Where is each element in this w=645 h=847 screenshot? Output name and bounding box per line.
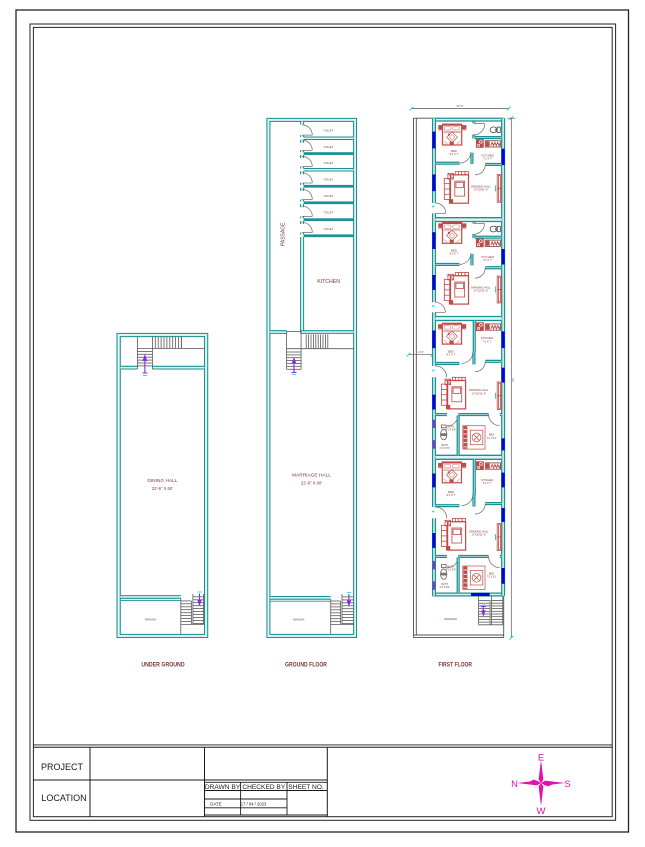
svg-text:9′1 X 7′: 9′1 X 7′: [447, 493, 457, 497]
svg-text:TOILET: TOILET: [324, 145, 334, 149]
svg-text:VERANDAH: VERANDAH: [293, 617, 305, 621]
svg-text:17′X10′11′-6″: 17′X10′11′-6″: [471, 533, 486, 537]
svg-text:17 / 04 / 2023: 17 / 04 / 2023: [241, 801, 267, 806]
svg-text:TOILET: TOILET: [324, 210, 334, 214]
svg-text:PASSAGE: PASSAGE: [281, 222, 287, 246]
svg-text:S: S: [564, 779, 570, 790]
svg-text:VERANDAH: VERANDAH: [145, 617, 157, 621]
svg-text:FIRST FLOOR: FIRST FLOOR: [439, 662, 473, 669]
svg-text:22′-6″ X 60′: 22′-6″ X 60′: [152, 486, 173, 491]
svg-text:VERANDAH: VERANDAH: [444, 617, 457, 621]
svg-text:KITCHEN: KITCHEN: [317, 279, 340, 285]
svg-text:7′1 X 7′: 7′1 X 7′: [483, 258, 493, 262]
svg-text:GROUND FLOOR: GROUND FLOOR: [285, 662, 327, 669]
svg-text:LOCATION: LOCATION: [41, 793, 86, 803]
svg-text:7′1 X 10′: 7′1 X 10′: [487, 576, 497, 579]
svg-text:TOILET: TOILET: [324, 161, 334, 165]
svg-text:PROJECT: PROJECT: [41, 762, 84, 772]
svg-text:7′1 X 7′: 7′1 X 7′: [483, 481, 493, 485]
svg-text:TOILET: TOILET: [324, 177, 334, 181]
svg-text:DRAWN BY: DRAWN BY: [205, 784, 241, 791]
svg-text:TOILET: TOILET: [324, 128, 334, 132]
svg-text:22′-6″ X 60′: 22′-6″ X 60′: [301, 481, 322, 486]
svg-text:9′1 X 7′: 9′1 X 7′: [447, 353, 457, 357]
svg-text:7′1 X 7′: 7′1 X 7′: [483, 339, 493, 343]
svg-text:7′1 X 10′: 7′1 X 10′: [487, 437, 497, 440]
svg-text:7′1 X 7′: 7′1 X 7′: [483, 157, 493, 161]
svg-text:60′: 60′: [511, 378, 515, 382]
svg-text:MARRIAGE HALL: MARRIAGE HALL: [292, 473, 331, 479]
svg-text:4′1 X 5′6″: 4′1 X 5′6″: [439, 586, 450, 589]
svg-text:DINING HALL: DINING HALL: [147, 478, 177, 484]
svg-text:4′-0″: 4′-0″: [418, 350, 424, 354]
svg-text:4′1 X 5′6″: 4′1 X 5′6″: [439, 447, 450, 450]
svg-text:4′1 X 5′6″: 4′1 X 5′6″: [446, 429, 457, 432]
svg-text:W: W: [537, 806, 546, 817]
svg-text:CHECKED BY: CHECKED BY: [242, 784, 285, 791]
svg-text:DATE: DATE: [210, 801, 221, 806]
svg-text:UP: UP: [482, 602, 486, 606]
svg-text:17′X10′11′-6″: 17′X10′11′-6″: [473, 289, 488, 293]
svg-text:9′1 X 7′: 9′1 X 7′: [449, 252, 459, 256]
svg-text:17′X10′11′-6″: 17′X10′11′-6″: [473, 188, 488, 192]
svg-text:17′X10′11′-6″: 17′X10′11′-6″: [471, 391, 486, 395]
svg-text:UNDER GROUND: UNDER GROUND: [141, 662, 185, 669]
svg-text:SHEET NO.: SHEET NO.: [288, 784, 324, 791]
svg-text:22′-6″: 22′-6″: [456, 104, 463, 108]
svg-text:N: N: [511, 779, 518, 790]
svg-text:TOILET: TOILET: [324, 194, 334, 198]
svg-text:E: E: [538, 753, 544, 764]
svg-text:TOILET: TOILET: [324, 227, 334, 231]
svg-text:4′1 X 5′6″: 4′1 X 5′6″: [446, 569, 457, 572]
svg-text:9′1 X 7′: 9′1 X 7′: [449, 152, 459, 156]
